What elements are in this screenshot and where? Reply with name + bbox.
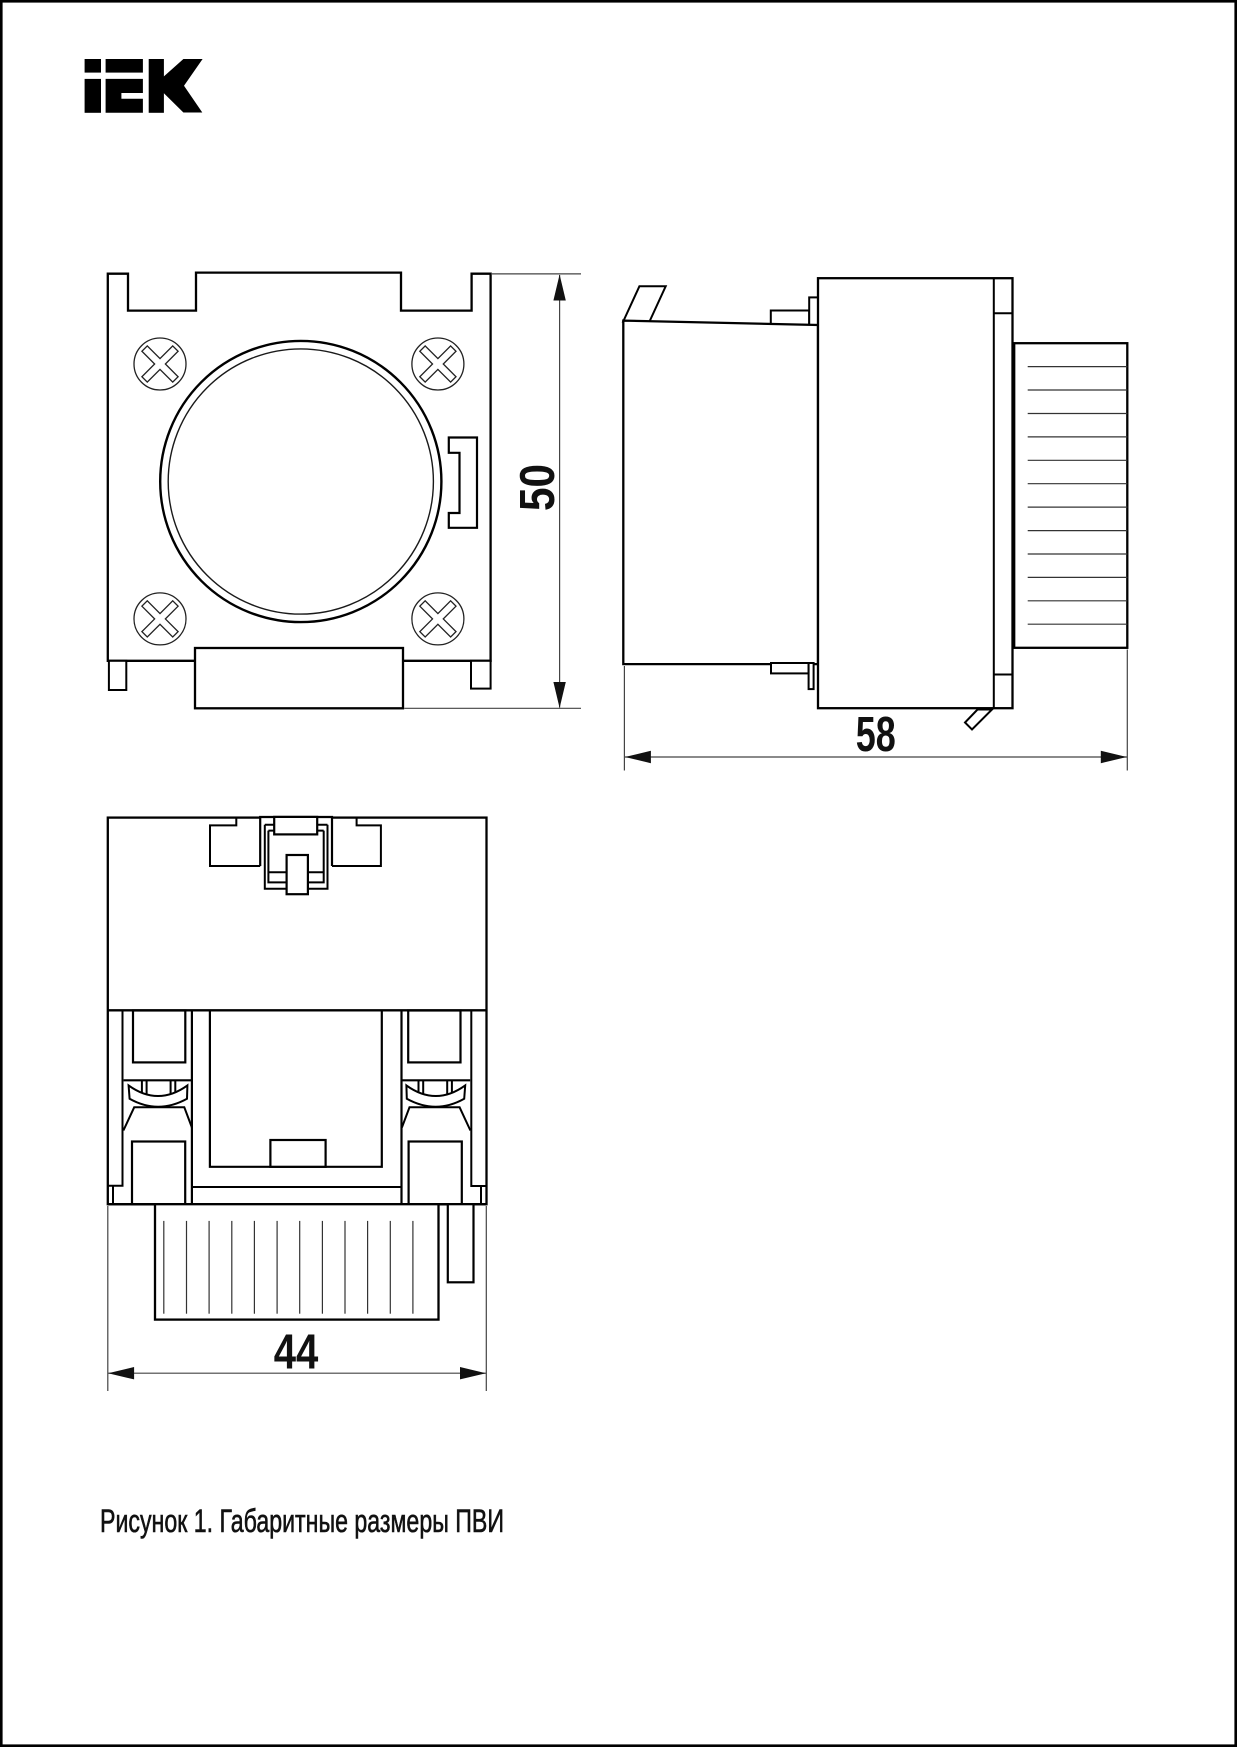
svg-text:Рисунок 1. Габаритные размеры: Рисунок 1. Габаритные размеры ПВИ — [100, 1503, 504, 1539]
svg-text:44: 44 — [274, 1326, 319, 1380]
svg-text:50: 50 — [511, 464, 565, 511]
svg-text:58: 58 — [856, 708, 896, 762]
